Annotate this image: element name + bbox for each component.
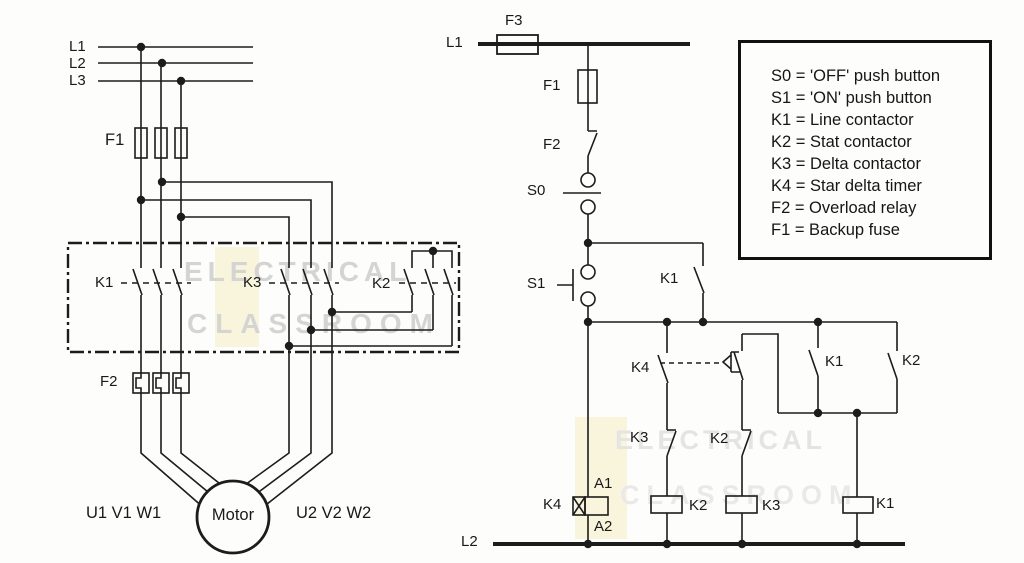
power-phase-wires [141,47,332,268]
enclosure-dashed-box [68,243,459,352]
legend-item: F2 = Overload relay [771,199,916,218]
k3-power-contacts-icon [269,269,339,346]
label-s1: S1 [527,276,545,293]
k2-no-contact-icon [888,322,897,413]
k1-holding-contact-icon [588,243,704,322]
k1-coil-icon [843,497,873,513]
k2-power-contacts-icon [399,251,456,346]
label-k2-interlock: K2 [710,431,728,448]
label-power-l2: L2 [69,56,86,73]
label-control-f3: F3 [505,13,523,30]
label-motor-terminals-right: U2 V2 W2 [296,504,371,522]
star-delta-starter-diagram: ELECTRICAL CLASSROOM ELECTRICAL CLASSROO… [0,0,1024,563]
k4-timer-delay-icon [723,352,741,372]
label-control-f1: F1 [543,78,561,95]
legend-item: K4 = Star delta timer [771,177,922,196]
k2-coil-icon [651,496,682,544]
s0-push-button-icon [563,173,601,214]
label-motor: Motor [205,506,261,524]
label-k1-aux: K1 [825,354,843,371]
k1-power-contacts-icon [121,269,191,374]
label-k2-coil: K2 [689,498,707,515]
legend-item: K3 = Delta contactor [771,155,921,174]
legend-item: F1 = Backup fuse [771,221,900,240]
k4-coil-icon [573,497,608,515]
label-motor-terminals-left: U1 V1 W1 [86,504,161,522]
f2-nc-contact-icon [588,131,597,156]
label-k4-coil: K4 [543,497,561,514]
label-k2-aux: K2 [902,353,920,370]
legend-item: K1 = Line contactor [771,111,914,130]
label-power-k1: K1 [95,275,113,292]
k4-timed-contact-a-icon [658,322,720,430]
label-power-f1: F1 [105,131,124,149]
legend-item: S0 = 'OFF' push button [771,67,940,86]
label-s0: S0 [527,183,545,200]
power-supply-lines [98,47,253,81]
label-power-f2: F2 [100,374,118,391]
aux-rail-wire [778,413,897,544]
f2-overload-icon [133,373,189,393]
label-k3-coil: K3 [762,498,780,515]
label-k1-coil: K1 [876,496,894,513]
label-control-l1: L1 [446,35,463,52]
label-k4-contact: K4 [631,360,649,377]
label-k3-interlock: K3 [630,430,648,447]
label-a1: A1 [594,476,612,493]
label-power-l3: L3 [69,73,86,90]
k2-nc-interlock-icon [742,430,751,496]
legend-item: S1 = 'ON' push button [771,89,932,108]
delta-link-wires [242,312,452,508]
label-power-k3: K3 [243,275,261,292]
label-a2: A2 [594,519,612,536]
label-power-l1: L1 [69,39,86,56]
label-k1-holding: K1 [660,271,678,288]
legend-item: K2 = Stat contactor [771,133,912,152]
legend-box: S0 = 'OFF' push button S1 = 'ON' push bu… [738,40,992,260]
s1-push-button-icon [557,265,595,306]
label-control-l2: L2 [461,534,478,551]
k3-nc-interlock-icon [667,430,676,496]
label-power-k2: K2 [372,276,390,293]
k4-timed-contact-b-icon [734,334,778,430]
k3-coil-icon [726,496,757,544]
k1-no-contact-icon [809,322,818,413]
label-control-f2: F2 [543,137,561,154]
